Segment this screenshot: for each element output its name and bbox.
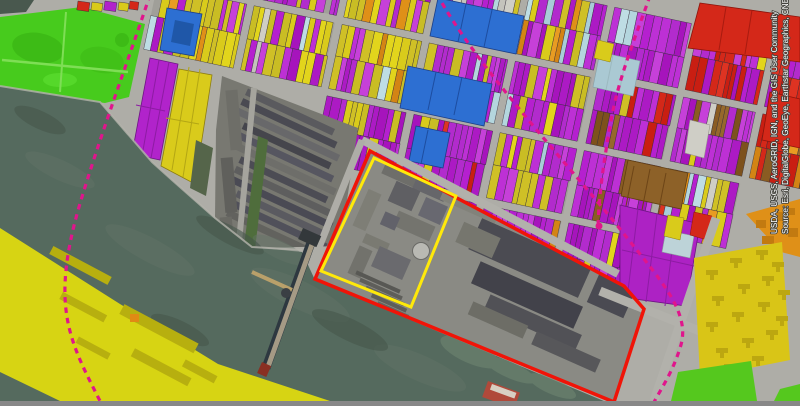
svg-text:Source: Esri, DigitalGlobe, Ge: Source: Esri, DigitalGlobe, GeoEye, Eart… xyxy=(781,0,790,234)
svg-text:USDA, USGS, AeroGRID, IGN, and: USDA, USGS, AeroGRID, IGN, and the GIS U… xyxy=(770,10,779,234)
